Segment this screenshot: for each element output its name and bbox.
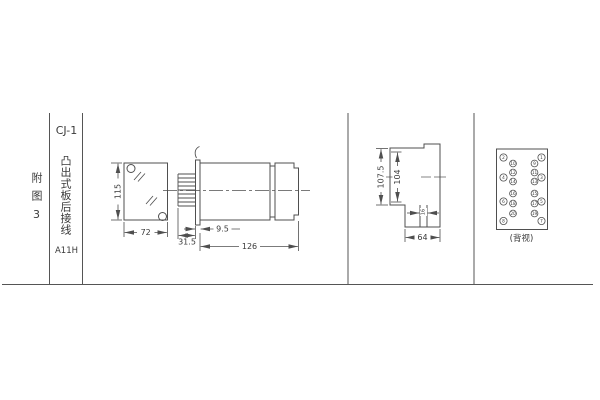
pin-number: 12 bbox=[510, 170, 516, 175]
back-view-caption: (背视) bbox=[510, 233, 534, 244]
relay-body bbox=[200, 163, 270, 220]
pin-number: 3 bbox=[540, 175, 543, 180]
pin-number: 5 bbox=[540, 199, 543, 204]
pin-circles bbox=[500, 154, 545, 225]
pin-number: 15 bbox=[532, 191, 538, 196]
pin-number: 7 bbox=[540, 219, 543, 224]
engineering-drawing-page: { "left_panel": { "figure_label": "附图3",… bbox=[0, 0, 600, 400]
dim-mount-width-label: 64 bbox=[417, 233, 427, 242]
pin-number: 11 bbox=[532, 170, 538, 175]
pin-number: 10 bbox=[510, 161, 516, 166]
dim-width-label: 72 bbox=[141, 228, 151, 237]
corner-hole-icon bbox=[159, 213, 167, 221]
pin-number: 16 bbox=[510, 191, 516, 196]
dim-front-depth-label: 31.5 bbox=[178, 238, 196, 247]
panel-break-mark bbox=[195, 147, 199, 159]
drawing-canvas: 115 72 bbox=[0, 0, 600, 400]
front-outline bbox=[124, 163, 168, 220]
pin-number: 4 bbox=[502, 175, 505, 180]
rear-mount-view: 107.5 104 16 64 bbox=[376, 144, 446, 242]
pin-number: 2 bbox=[502, 155, 505, 160]
body-neck bbox=[270, 166, 275, 217]
side-view: 9.5 31.5 126 bbox=[163, 147, 310, 252]
terminal-fins bbox=[178, 174, 196, 206]
pin-number: 6 bbox=[502, 199, 505, 204]
dim-overall-height-label: 107.5 bbox=[377, 166, 386, 189]
pin-number: 19 bbox=[532, 211, 538, 216]
hatch-marks bbox=[134, 172, 157, 206]
front-view: 115 72 bbox=[111, 163, 168, 237]
corner-hole-icon bbox=[127, 165, 135, 173]
mounting-plate bbox=[196, 160, 201, 225]
rear-cap bbox=[275, 163, 299, 220]
pin-number: 13 bbox=[532, 179, 538, 184]
pin-number: 20 bbox=[510, 211, 516, 216]
pin-number: 18 bbox=[510, 201, 516, 206]
dim-panel-thickness-label: 9.5 bbox=[216, 225, 229, 234]
dim-31-5 bbox=[178, 208, 196, 239]
pin-number: 9 bbox=[533, 161, 536, 166]
pin-number: 8 bbox=[502, 219, 505, 224]
dim-tab-width-label: 16 bbox=[421, 209, 427, 215]
dim-body-length-label: 126 bbox=[242, 242, 257, 251]
pin-number: 17 bbox=[532, 201, 538, 206]
back-view: 2 4 6 8 10 12 14 16 18 20 9 11 13 15 17 … bbox=[497, 149, 548, 244]
pin-number: 14 bbox=[510, 179, 516, 184]
dim-cutout-height-label: 104 bbox=[393, 169, 402, 184]
dim-height-label: 115 bbox=[114, 184, 123, 199]
pin-number: 1 bbox=[540, 155, 543, 160]
